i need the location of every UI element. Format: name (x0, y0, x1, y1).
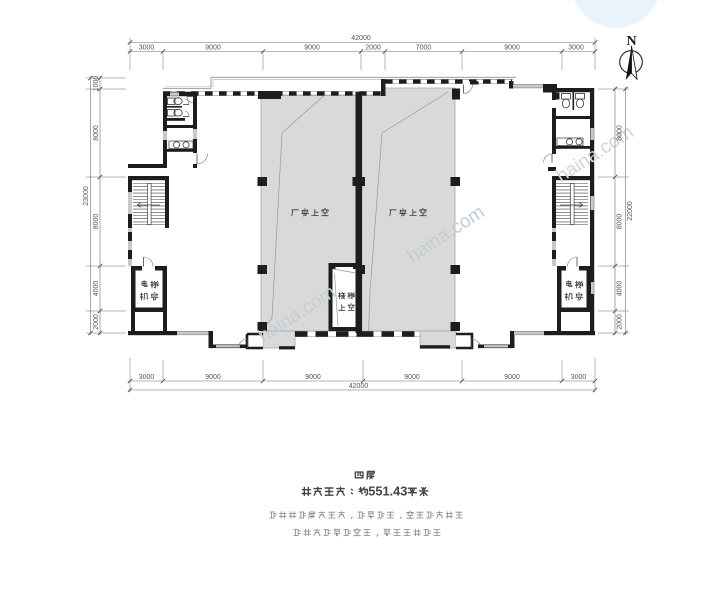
svg-text:3000: 3000 (571, 374, 587, 381)
svg-text:9000: 9000 (304, 45, 320, 52)
svg-text:8000: 8000 (93, 125, 100, 141)
svg-text:9000: 9000 (205, 45, 221, 52)
svg-text:2000: 2000 (617, 314, 624, 330)
svg-text:8000: 8000 (617, 125, 624, 141)
svg-text:4000: 4000 (93, 281, 100, 297)
svg-text:3000: 3000 (139, 374, 155, 381)
svg-text:4000: 4000 (617, 281, 624, 297)
svg-text:9000: 9000 (205, 374, 221, 381)
svg-text:2000: 2000 (93, 314, 100, 330)
svg-text:23000: 23000 (83, 186, 90, 206)
svg-text:42000: 42000 (349, 383, 369, 390)
svg-text:8000: 8000 (93, 214, 100, 230)
svg-text:9000: 9000 (404, 374, 420, 381)
svg-text:7000: 7000 (416, 45, 432, 52)
svg-text:8000: 8000 (617, 214, 624, 230)
svg-text:9000: 9000 (305, 374, 321, 381)
svg-text:551.43: 551.43 (368, 484, 407, 499)
svg-text:3000: 3000 (139, 45, 155, 52)
svg-text:3000: 3000 (568, 45, 584, 52)
svg-text:22000: 22000 (627, 201, 634, 221)
svg-text:2000: 2000 (365, 45, 381, 52)
svg-text:42000: 42000 (351, 35, 371, 42)
svg-text:9000: 9000 (504, 374, 520, 381)
svg-text:9000: 9000 (504, 45, 520, 52)
